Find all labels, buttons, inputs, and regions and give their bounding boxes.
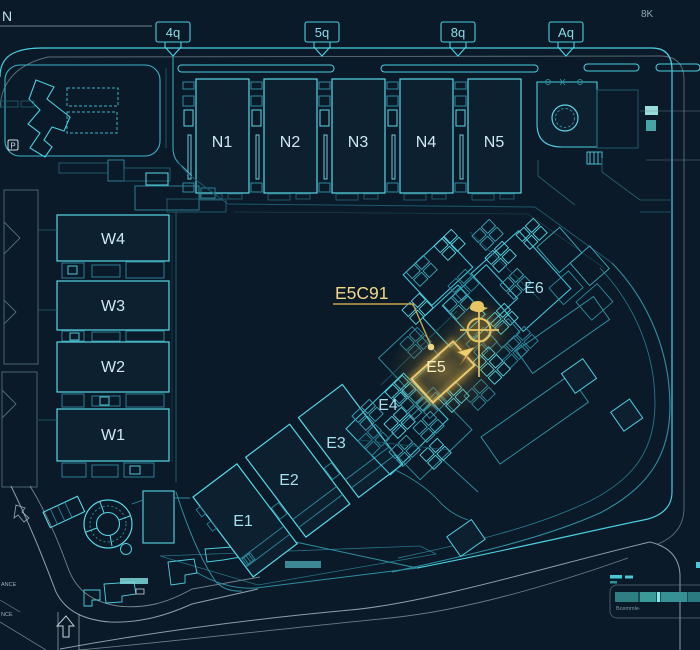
svg-text:E2: E2 bbox=[279, 472, 299, 489]
svg-text:W2: W2 bbox=[101, 359, 125, 376]
svg-text:N3: N3 bbox=[348, 134, 369, 151]
svg-text:8q: 8q bbox=[451, 25, 465, 40]
svg-text:E5C91: E5C91 bbox=[335, 283, 389, 303]
svg-text:ANCE: ANCE bbox=[1, 582, 17, 588]
svg-text:E6: E6 bbox=[524, 280, 544, 297]
svg-text:N2: N2 bbox=[280, 134, 301, 151]
svg-text:5q: 5q bbox=[315, 25, 329, 40]
svg-text:E3: E3 bbox=[326, 435, 346, 452]
svg-text:N4: N4 bbox=[416, 134, 437, 151]
svg-text:N5: N5 bbox=[484, 134, 505, 151]
svg-text:N1: N1 bbox=[212, 134, 233, 151]
svg-text:W4: W4 bbox=[101, 231, 125, 248]
svg-text:4q: 4q bbox=[166, 25, 180, 40]
svg-text:P: P bbox=[10, 142, 15, 151]
svg-text:N: N bbox=[2, 8, 12, 24]
svg-text:W3: W3 bbox=[101, 298, 125, 315]
svg-text:Bosmmle·: Bosmmle· bbox=[616, 606, 641, 612]
svg-text:E4: E4 bbox=[378, 397, 398, 414]
svg-text:W1: W1 bbox=[101, 427, 125, 444]
svg-text:Aq: Aq bbox=[558, 25, 574, 40]
svg-text:E5: E5 bbox=[426, 359, 446, 376]
svg-text:E1: E1 bbox=[233, 513, 253, 530]
svg-text:NCE: NCE bbox=[1, 612, 13, 618]
svg-text:8K: 8K bbox=[641, 9, 654, 20]
